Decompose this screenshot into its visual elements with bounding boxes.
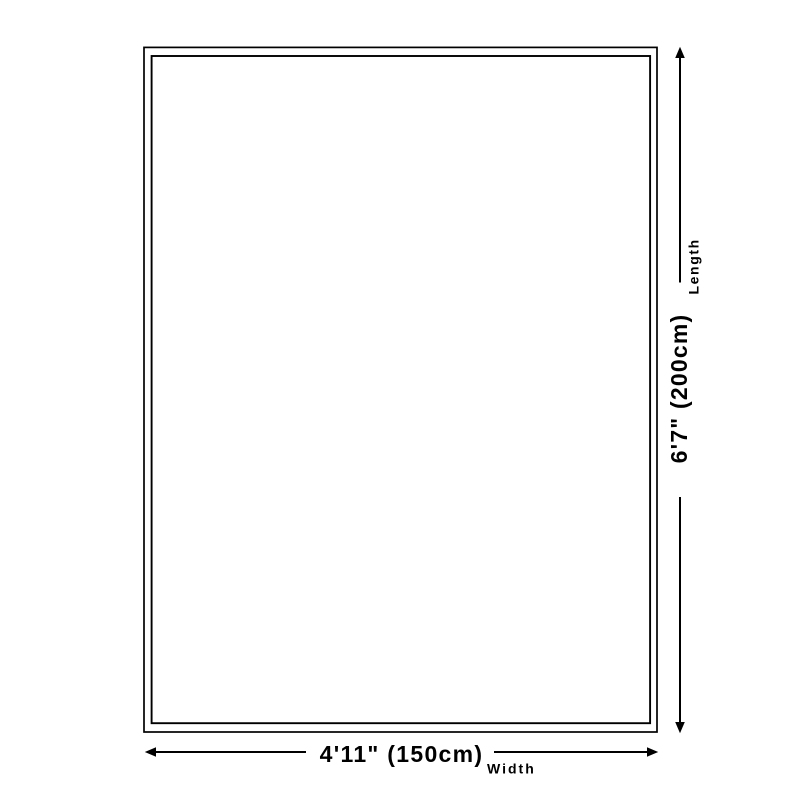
svg-text:Length: Length <box>686 238 702 294</box>
svg-text:4'11" (150cm): 4'11" (150cm) <box>320 741 484 767</box>
svg-text:6'7" (200cm): 6'7" (200cm) <box>666 314 692 464</box>
svg-text:Width: Width <box>487 760 536 776</box>
